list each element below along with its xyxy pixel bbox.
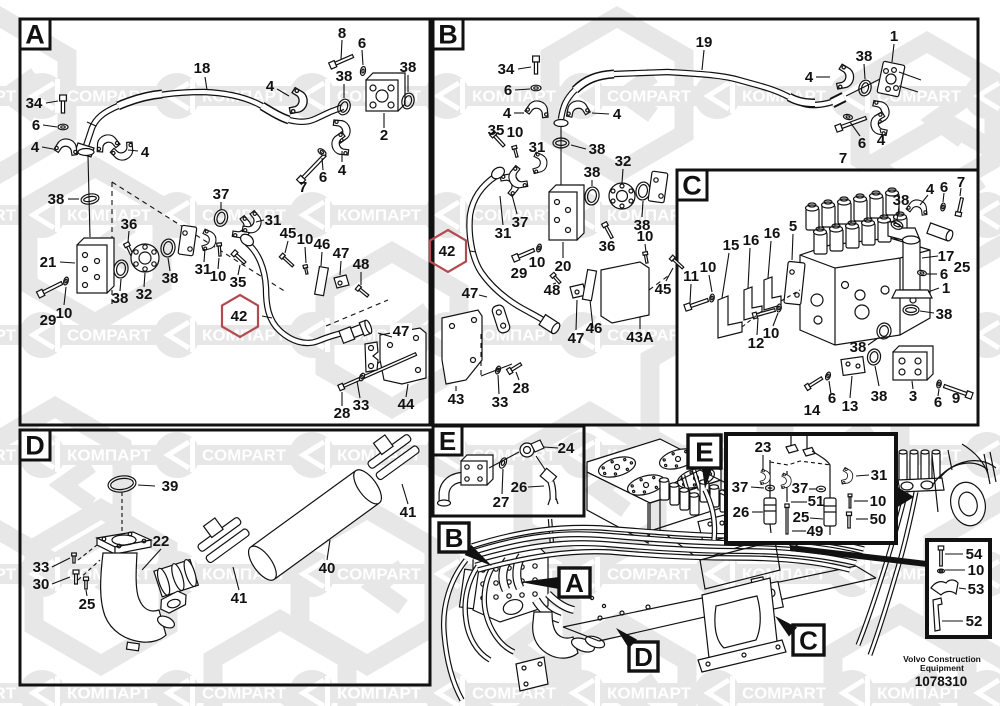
svg-text:29: 29 bbox=[40, 312, 57, 329]
svg-text:КОМПАРТ: КОМПАРТ bbox=[0, 328, 16, 345]
svg-text:31: 31 bbox=[529, 139, 546, 156]
svg-text:1078310: 1078310 bbox=[915, 674, 968, 689]
svg-text:48: 48 bbox=[353, 256, 370, 273]
svg-text:52: 52 bbox=[966, 613, 983, 630]
svg-text:COMPART: COMPART bbox=[607, 567, 691, 584]
svg-text:COMPART: COMPART bbox=[472, 686, 556, 703]
svg-text:10: 10 bbox=[637, 228, 654, 245]
svg-text:21: 21 bbox=[40, 254, 57, 271]
svg-text:33: 33 bbox=[353, 397, 370, 414]
svg-text:24: 24 bbox=[558, 440, 575, 457]
svg-text:10: 10 bbox=[507, 124, 524, 141]
svg-text:31: 31 bbox=[871, 467, 888, 484]
svg-text:25: 25 bbox=[954, 259, 971, 276]
svg-text:6: 6 bbox=[940, 266, 948, 283]
svg-text:28: 28 bbox=[334, 405, 351, 422]
svg-text:38: 38 bbox=[893, 192, 910, 209]
svg-text:14: 14 bbox=[804, 402, 821, 419]
svg-text:КОМПАРТ: КОМПАРТ bbox=[0, 567, 16, 584]
svg-text:КОМПАРТ: КОМПАРТ bbox=[0, 89, 16, 106]
svg-text:4: 4 bbox=[31, 139, 40, 156]
svg-text:COMPART: COMPART bbox=[337, 567, 421, 584]
svg-text:9: 9 bbox=[952, 390, 960, 407]
svg-text:38: 38 bbox=[336, 68, 353, 85]
svg-text:38: 38 bbox=[162, 270, 179, 287]
svg-text:27: 27 bbox=[493, 494, 510, 511]
svg-text:38: 38 bbox=[850, 339, 867, 356]
svg-text:11: 11 bbox=[683, 268, 699, 285]
svg-text:25: 25 bbox=[79, 596, 96, 613]
svg-text:37: 37 bbox=[732, 479, 749, 496]
svg-text:34: 34 bbox=[498, 61, 515, 78]
svg-text:40: 40 bbox=[319, 560, 336, 577]
svg-text:20: 20 bbox=[555, 258, 572, 275]
svg-text:29: 29 bbox=[511, 265, 528, 282]
svg-text:КОМПАРТ: КОМПАРТ bbox=[202, 328, 286, 345]
svg-text:7: 7 bbox=[839, 150, 847, 167]
svg-text:38: 38 bbox=[936, 306, 953, 323]
svg-text:10: 10 bbox=[529, 254, 546, 271]
svg-text:17: 17 bbox=[938, 248, 955, 265]
svg-text:43A: 43A bbox=[626, 329, 654, 346]
svg-text:A: A bbox=[565, 568, 584, 598]
svg-text:8: 8 bbox=[338, 25, 346, 42]
svg-text:4: 4 bbox=[503, 105, 512, 122]
svg-text:16: 16 bbox=[764, 225, 781, 242]
svg-text:D: D bbox=[25, 431, 45, 461]
svg-text:2: 2 bbox=[380, 127, 388, 144]
svg-text:6: 6 bbox=[934, 394, 942, 411]
svg-text:6: 6 bbox=[32, 117, 40, 134]
svg-text:КОМПАРТ: КОМПАРТ bbox=[67, 208, 151, 225]
svg-text:37: 37 bbox=[213, 186, 230, 203]
svg-text:4: 4 bbox=[805, 69, 814, 86]
svg-text:49: 49 bbox=[807, 523, 824, 540]
svg-text:53: 53 bbox=[968, 581, 985, 598]
svg-text:41: 41 bbox=[231, 590, 248, 607]
svg-text:47: 47 bbox=[462, 285, 479, 302]
svg-text:38: 38 bbox=[112, 290, 129, 307]
svg-text:36: 36 bbox=[121, 216, 138, 233]
svg-text:35: 35 bbox=[488, 122, 505, 139]
svg-text:38: 38 bbox=[48, 191, 65, 208]
svg-text:10: 10 bbox=[700, 259, 717, 276]
svg-text:26: 26 bbox=[511, 479, 528, 496]
svg-text:COMPART: COMPART bbox=[0, 448, 16, 465]
svg-text:46: 46 bbox=[586, 320, 603, 337]
svg-text:КОМПАРТ: КОМПАРТ bbox=[607, 686, 691, 703]
svg-text:1: 1 bbox=[890, 28, 898, 45]
svg-text:13: 13 bbox=[842, 398, 859, 415]
svg-text:10: 10 bbox=[210, 268, 227, 285]
svg-text:4: 4 bbox=[877, 132, 886, 149]
svg-text:A: A bbox=[25, 20, 45, 50]
svg-text:47: 47 bbox=[568, 330, 585, 347]
svg-text:COMPART: COMPART bbox=[0, 208, 16, 225]
svg-text:10: 10 bbox=[968, 562, 985, 579]
svg-text:6: 6 bbox=[828, 390, 836, 407]
svg-text:33: 33 bbox=[492, 394, 509, 411]
svg-text:C: C bbox=[682, 171, 702, 201]
svg-text:38: 38 bbox=[589, 141, 606, 158]
svg-text:Equipment: Equipment bbox=[920, 663, 964, 673]
svg-text:51: 51 bbox=[808, 493, 825, 510]
svg-text:45: 45 bbox=[280, 225, 297, 242]
svg-text:COMPART: COMPART bbox=[742, 686, 826, 703]
svg-text:E: E bbox=[695, 437, 714, 468]
svg-text:COMPART: COMPART bbox=[67, 328, 151, 345]
svg-text:32: 32 bbox=[136, 286, 153, 303]
svg-text:4: 4 bbox=[141, 144, 150, 161]
svg-text:6: 6 bbox=[504, 82, 512, 99]
svg-text:10: 10 bbox=[56, 305, 73, 322]
svg-text:7: 7 bbox=[299, 179, 307, 196]
svg-text:16: 16 bbox=[743, 232, 760, 249]
svg-text:COMPART: COMPART bbox=[607, 89, 691, 106]
svg-text:3: 3 bbox=[909, 388, 917, 405]
svg-text:38: 38 bbox=[856, 48, 873, 65]
svg-text:B: B bbox=[445, 523, 464, 553]
svg-text:43: 43 bbox=[448, 391, 465, 408]
svg-text:41: 41 bbox=[400, 504, 417, 521]
svg-text:4: 4 bbox=[338, 162, 347, 179]
svg-text:47: 47 bbox=[393, 323, 410, 340]
svg-text:COMPART: COMPART bbox=[202, 448, 286, 465]
svg-text:38: 38 bbox=[400, 59, 417, 76]
svg-text:6: 6 bbox=[319, 169, 327, 186]
svg-text:COMPART: COMPART bbox=[0, 686, 16, 703]
svg-text:30: 30 bbox=[33, 576, 50, 593]
svg-text:КОМПАРТ: КОМПАРТ bbox=[67, 686, 151, 703]
svg-text:5: 5 bbox=[789, 218, 797, 235]
svg-text:42: 42 bbox=[439, 243, 456, 260]
svg-text:50: 50 bbox=[870, 511, 887, 528]
svg-text:B: B bbox=[438, 20, 458, 50]
svg-text:47: 47 bbox=[333, 245, 350, 262]
svg-text:32: 32 bbox=[615, 153, 632, 170]
svg-text:54: 54 bbox=[966, 546, 983, 563]
svg-text:35: 35 bbox=[230, 274, 247, 291]
svg-text:33: 33 bbox=[33, 559, 50, 576]
svg-text:10: 10 bbox=[870, 493, 887, 510]
svg-text:КОМПАРТ: КОМПАРТ bbox=[67, 448, 151, 465]
svg-text:COMPART: COMPART bbox=[202, 686, 286, 703]
svg-text:КОМПАРТ: КОМПАРТ bbox=[472, 328, 556, 345]
svg-text:15: 15 bbox=[723, 237, 740, 254]
svg-text:36: 36 bbox=[599, 238, 616, 255]
svg-text:10: 10 bbox=[297, 231, 314, 248]
svg-text:34: 34 bbox=[26, 95, 43, 112]
svg-text:26: 26 bbox=[733, 504, 750, 521]
svg-text:19: 19 bbox=[696, 34, 713, 51]
svg-text:C: C bbox=[799, 625, 818, 655]
svg-text:4: 4 bbox=[613, 106, 622, 123]
svg-text:38: 38 bbox=[871, 388, 888, 405]
svg-text:D: D bbox=[634, 642, 653, 672]
svg-text:6: 6 bbox=[858, 135, 866, 152]
svg-text:E: E bbox=[439, 426, 456, 456]
svg-text:10: 10 bbox=[763, 325, 780, 342]
svg-text:44: 44 bbox=[398, 396, 415, 413]
svg-text:28: 28 bbox=[513, 380, 530, 397]
svg-text:38: 38 bbox=[584, 164, 601, 181]
svg-text:48: 48 bbox=[544, 282, 561, 299]
svg-text:31: 31 bbox=[495, 225, 512, 242]
svg-text:КОМПАРТ: КОМПАРТ bbox=[337, 208, 421, 225]
svg-text:22: 22 bbox=[153, 533, 170, 550]
svg-text:37: 37 bbox=[512, 214, 529, 231]
svg-text:23: 23 bbox=[755, 439, 772, 456]
svg-text:42: 42 bbox=[231, 308, 248, 325]
svg-text:46: 46 bbox=[314, 236, 331, 253]
svg-text:18: 18 bbox=[194, 60, 211, 77]
svg-text:4: 4 bbox=[266, 78, 275, 95]
svg-text:КОМПАРТ: КОМПАРТ bbox=[337, 686, 421, 703]
svg-text:39: 39 bbox=[162, 478, 179, 495]
svg-text:6: 6 bbox=[358, 35, 366, 52]
svg-text:37: 37 bbox=[792, 480, 809, 497]
